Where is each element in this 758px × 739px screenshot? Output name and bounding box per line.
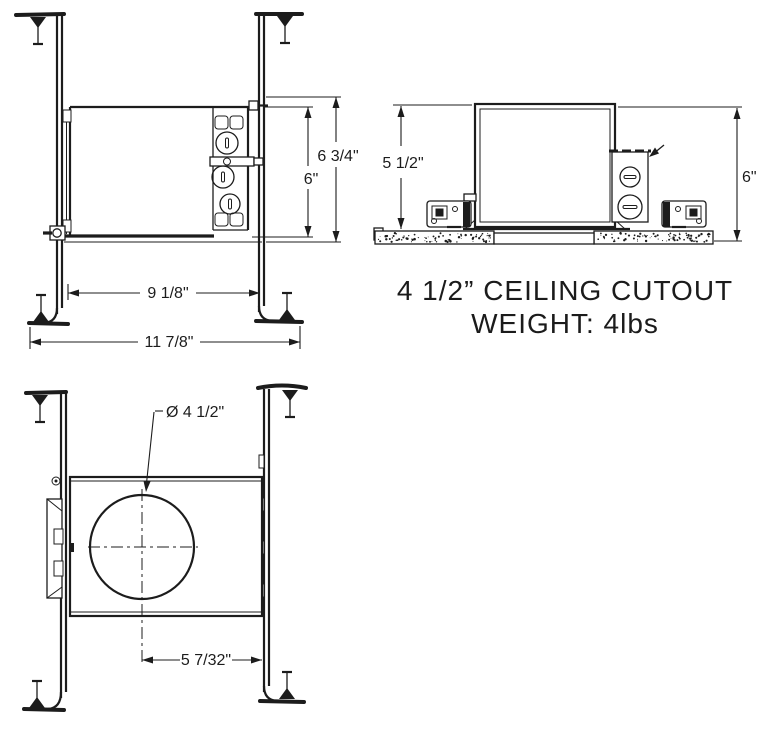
ceiling-section <box>375 231 713 244</box>
front-view: 6 3/4" 6" 9 1/8" 11 7 <box>16 14 359 351</box>
technical-drawing-page: 6 3/4" 6" 9 1/8" 11 7 <box>0 0 758 739</box>
junction-box-side <box>609 145 664 222</box>
drawing-canvas: 6 3/4" 6" 9 1/8" 11 7 <box>0 0 758 739</box>
dim-label-side-housing-height: 5 1/2" <box>382 155 423 172</box>
dim-label-front-housing-width: 9 1/8" <box>147 285 188 302</box>
dim-front-overall-height <box>266 97 341 242</box>
hanger-bracket-side-right <box>662 201 706 227</box>
dim-label-front-housing-height: 6" <box>304 171 319 188</box>
dim-label-side-overall-height: 6" <box>742 169 757 186</box>
side-view: 5 1/2" 6" <box>374 104 757 244</box>
bottom-view: Ø 4 1/2" 5 7/32" <box>24 386 306 711</box>
cable-clamp <box>210 157 263 166</box>
caption-line2: WEIGHT: 4lbs <box>471 308 659 339</box>
housing-side <box>463 104 630 229</box>
dim-label-front-overall-width: 11 7/8" <box>145 334 194 351</box>
caption-line1: 4 1/2” CEILING CUTOUT <box>397 275 733 306</box>
trim-flange <box>494 233 594 244</box>
hanger-bar-left <box>44 15 62 323</box>
hanger-bracket-side-left <box>427 201 471 227</box>
nail-bracket-bv-top-right <box>258 386 306 418</box>
mounting-clip <box>43 226 65 240</box>
caption: 4 1/2” CEILING CUTOUT WEIGHT: 4lbs <box>397 275 733 339</box>
dim-label-bottom-aperture: Ø 4 1/2" <box>166 404 224 421</box>
bar-clamp-screw <box>249 101 268 110</box>
knockout-circles <box>212 132 240 214</box>
hanger-bar-right <box>259 14 272 321</box>
dim-label-front-overall-height: 6 3/4" <box>317 148 358 165</box>
dim-label-bottom-center-offset: 5 7/32" <box>181 652 231 669</box>
